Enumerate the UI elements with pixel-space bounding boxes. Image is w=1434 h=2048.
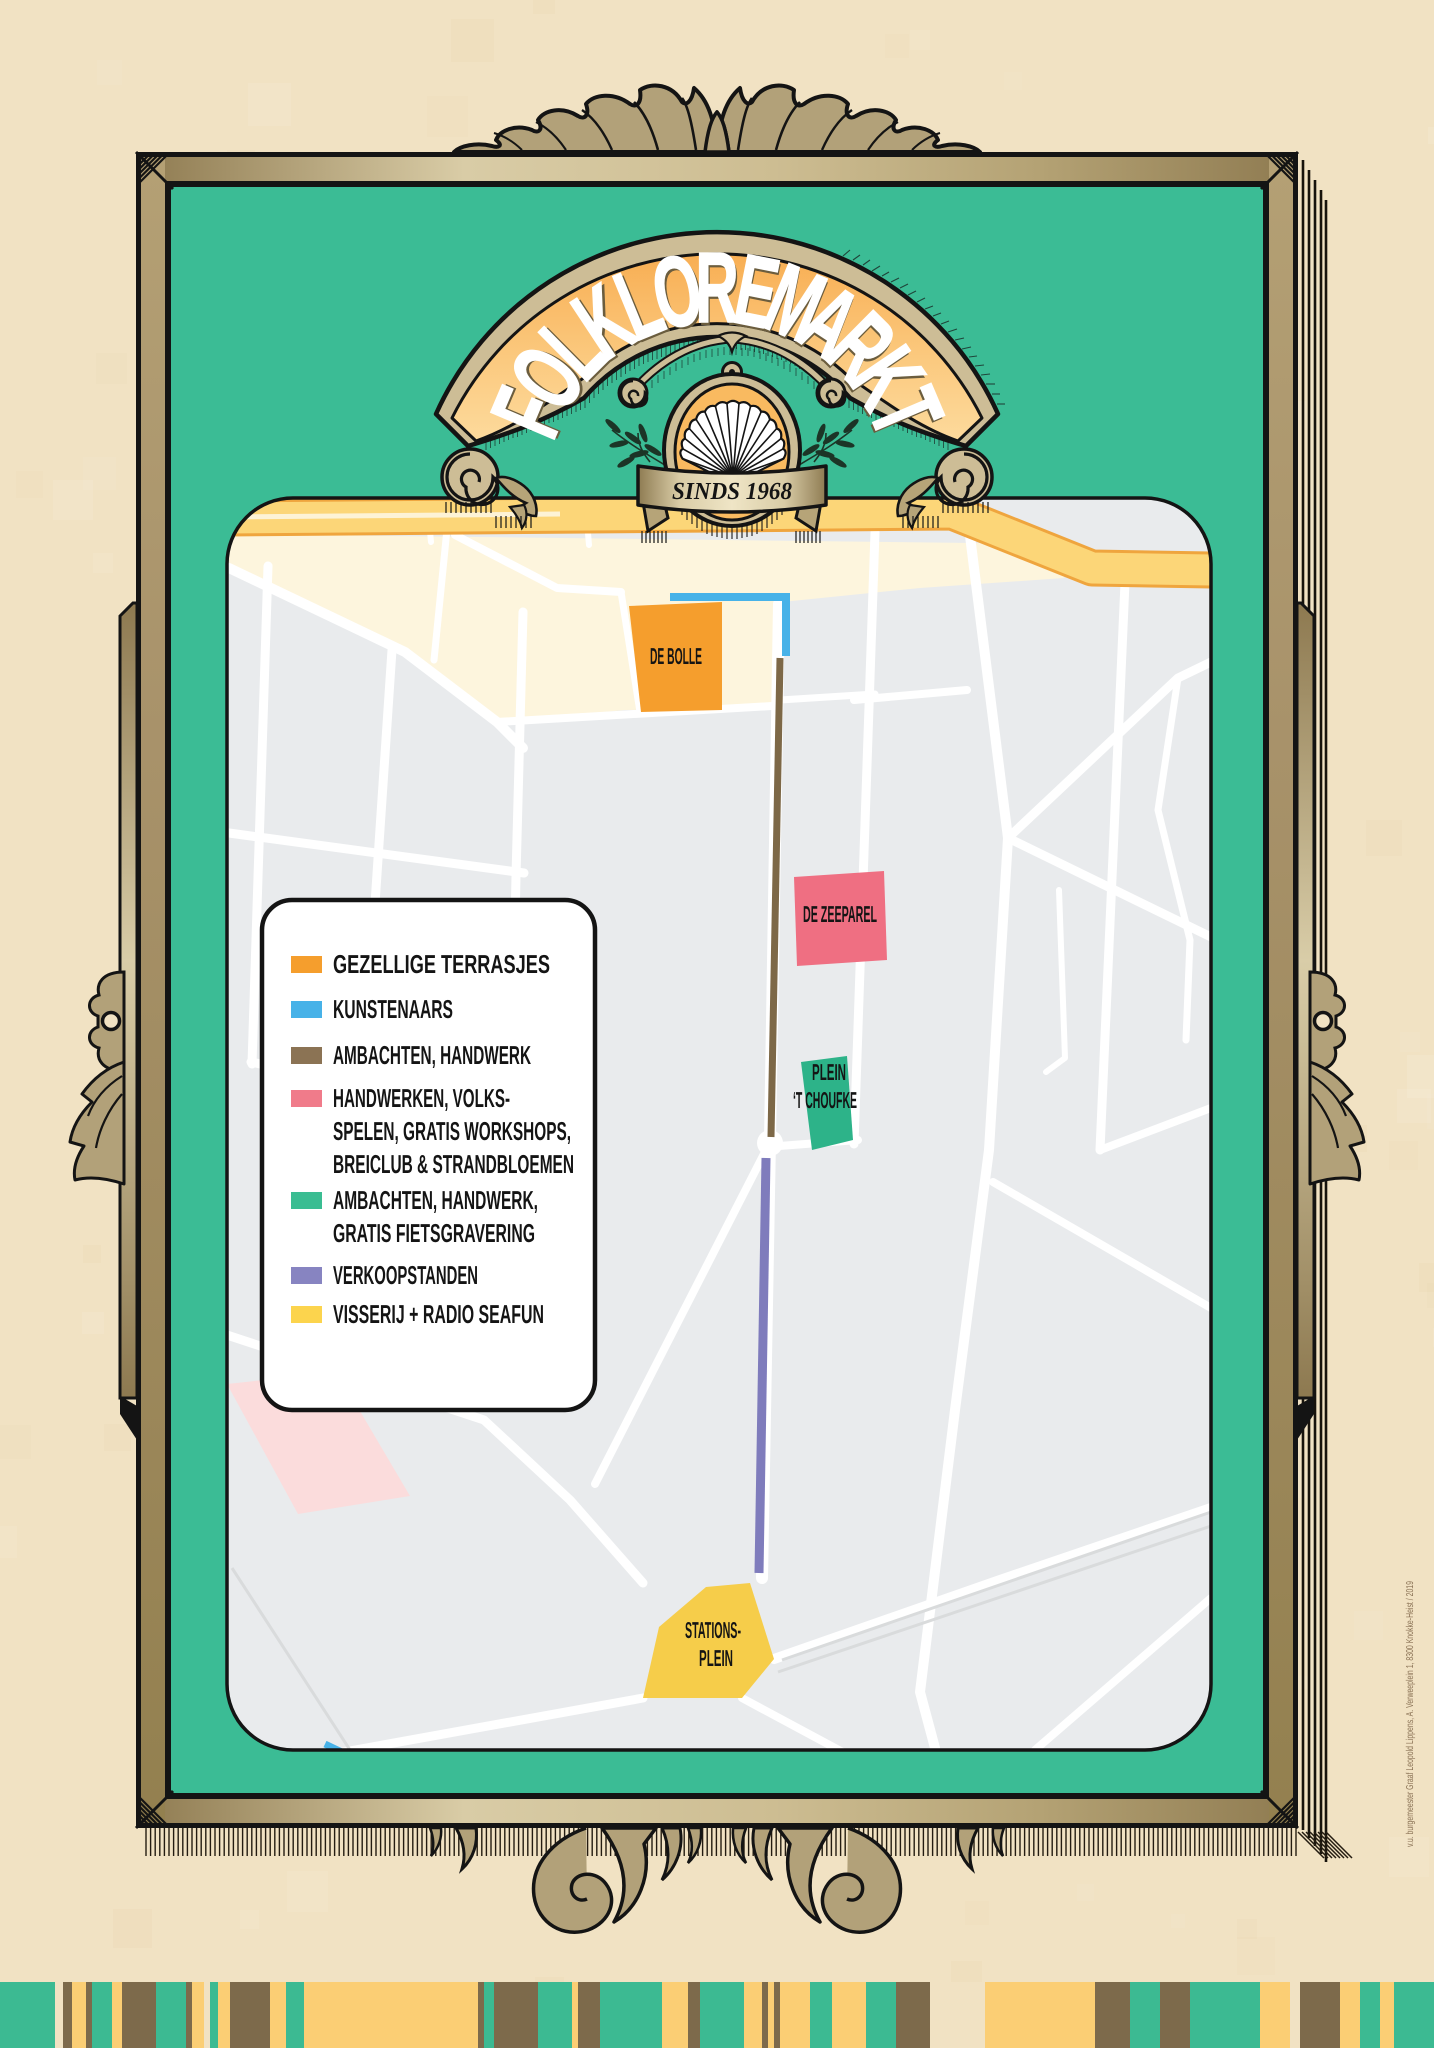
svg-text:AMBACHTEN, HANDWERK,: AMBACHTEN, HANDWERK,	[333, 1185, 538, 1215]
svg-text:GRATIS FIETSGRAVERING: GRATIS FIETSGRAVERING	[333, 1218, 535, 1248]
svg-text:VERKOOPSTANDEN: VERKOOPSTANDEN	[333, 1260, 478, 1290]
svg-text:PLEIN: PLEIN	[699, 1645, 733, 1671]
svg-text:AMBACHTEN, HANDWERK: AMBACHTEN, HANDWERK	[333, 1040, 531, 1070]
svg-text:SINDS 1968: SINDS 1968	[672, 478, 792, 505]
svg-text:DE ZEEPAREL: DE ZEEPAREL	[803, 901, 877, 927]
svg-text:BREICLUB & STRANDBLOEMEN: BREICLUB & STRANDBLOEMEN	[333, 1149, 574, 1179]
svg-text:HANDWERKEN, VOLKS-: HANDWERKEN, VOLKS-	[333, 1083, 510, 1113]
svg-text:VISSERIJ + RADIO SEAFUN: VISSERIJ + RADIO SEAFUN	[333, 1299, 544, 1329]
svg-text:DE BOLLE: DE BOLLE	[650, 643, 702, 669]
svg-text:v.u. burgemeester Graaf Leopol: v.u. burgemeester Graaf Leopold Lippens,…	[1405, 1581, 1416, 1847]
svg-text:PLEIN: PLEIN	[812, 1059, 846, 1085]
svg-text:‘T CHOUFKE: ‘T CHOUFKE	[793, 1087, 857, 1113]
svg-text:SPELEN, GRATIS WORKSHOPS,: SPELEN, GRATIS WORKSHOPS,	[333, 1116, 571, 1146]
svg-text:STATIONS-: STATIONS-	[685, 1617, 741, 1643]
svg-text:GEZELLIGE TERRASJES: GEZELLIGE TERRASJES	[333, 949, 550, 979]
svg-text:KUNSTENAARS: KUNSTENAARS	[333, 994, 453, 1024]
